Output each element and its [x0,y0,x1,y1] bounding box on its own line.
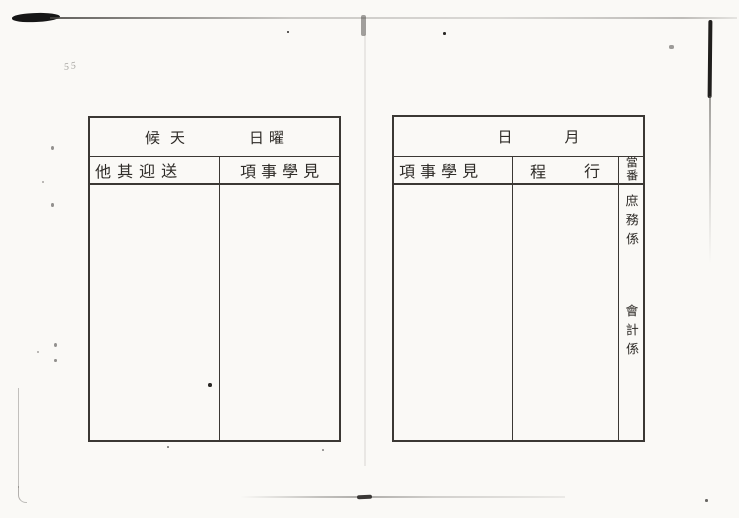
scan-speck [322,449,324,451]
right-fold-faint-line [709,96,711,264]
left-table-title-row: 候天 日曜 [90,118,339,157]
scan-ink-streak-top-left [12,12,60,23]
itinerary-header-cell: 程行 [513,157,619,183]
scan-speck [167,446,169,448]
scan-speck [54,359,57,362]
right-table-header-row: 項事學見 程行 當番 [394,157,643,185]
duty-header-label: 當番 [624,156,637,182]
itinerary-entry-cell [513,185,619,440]
general-affairs-section-label: 庶務係 [624,194,639,251]
pencil-annotation: 55 [63,60,79,73]
scan-top-edge-line [50,17,737,19]
scan-speck [37,351,39,353]
scan-speck [51,203,54,207]
sendoff-misc-entry-cell [90,185,220,440]
scan-speck [54,343,57,347]
scan-speck [287,31,289,33]
scan-speck [42,181,44,183]
paper-sheet: 55 候天 日曜 他其迎送 項事學見 [0,0,739,518]
scan-speck [705,499,708,502]
duty-header-cell: 當番 [619,157,643,183]
scanned-document-page: 55 候天 日曜 他其迎送 項事學見 [0,0,739,518]
left-table-header-row: 他其迎送 項事學見 [90,157,339,185]
scan-smudge [669,45,674,49]
scan-speck [443,32,446,35]
center-fold-smudge [361,15,366,36]
scan-speck [51,146,54,150]
observation-items-header-cell-left: 項事學見 [220,157,339,183]
sendoff-misc-header-label: 他其迎送 [95,158,183,183]
date-title-day-char: 日 [497,126,512,147]
right-table-body-row: 庶務係 會計係 [394,185,643,440]
left-page-edge-hook [18,486,27,503]
left-page-edge-line [18,388,19,488]
weather-weekday-table: 候天 日曜 他其迎送 項事學見 [88,116,341,442]
right-table-title-row: 日 月 [394,117,643,157]
accounting-section-label: 會計係 [624,304,639,361]
left-table-body-row [90,185,339,440]
observation-items-header-label-left: 項事學見 [240,158,324,183]
bottom-crease-blob [357,494,372,498]
right-fold-dark-streak [708,20,713,98]
observation-items-entry-cell-left [220,185,339,440]
observation-items-header-label-right: 項事學見 [399,158,483,183]
observation-items-header-cell-right: 項事學見 [394,157,513,183]
weather-title-label: 候天 [145,126,195,148]
date-itinerary-table: 日 月 項事學見 程行 當番 庶務係 會計係 [392,115,645,442]
duty-entry-cell: 庶務係 會計係 [619,185,643,440]
bottom-crease-line [240,496,565,498]
date-title-month-char: 月 [565,126,580,147]
observation-items-entry-cell-right [394,185,513,440]
sendoff-misc-header-cell: 他其迎送 [90,157,220,183]
weekday-title-label: 日曜 [249,126,289,147]
center-fold-line [364,34,366,466]
